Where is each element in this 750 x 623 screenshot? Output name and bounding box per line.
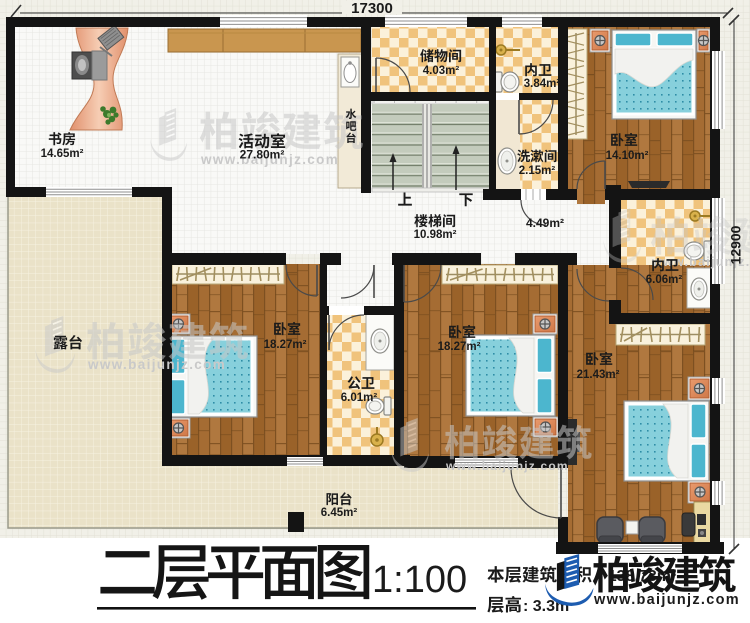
svg-text:27.80m²: 27.80m²: [240, 148, 285, 162]
svg-text:21.43m²: 21.43m²: [577, 369, 620, 381]
svg-text:4.03m²: 4.03m²: [423, 65, 460, 77]
svg-text:6.01m²: 6.01m²: [341, 392, 378, 404]
svg-text:12900: 12900: [728, 225, 744, 264]
svg-text:4.49m²: 4.49m²: [526, 216, 564, 230]
svg-text:3.84m²: 3.84m²: [524, 78, 561, 90]
svg-text:17300: 17300: [351, 0, 393, 17]
svg-text:14.10m²: 14.10m²: [606, 150, 649, 162]
svg-text:10.98m²: 10.98m²: [414, 229, 457, 241]
svg-text:2.15m²: 2.15m²: [519, 165, 556, 177]
svg-text:14.65m²: 14.65m²: [41, 148, 84, 160]
svg-text:www.baijunjz.com: www.baijunjz.com: [87, 357, 226, 372]
svg-text:18.27m²: 18.27m²: [438, 341, 481, 353]
svg-text:6.06m²: 6.06m²: [646, 274, 683, 286]
svg-text:6.45m²: 6.45m²: [321, 507, 358, 519]
svg-text:www.baijunjz.com: www.baijunjz.com: [445, 459, 569, 473]
svg-text:: 3.3m: : 3.3m: [523, 598, 569, 615]
svg-text:www.baijunjz.com: www.baijunjz.com: [593, 592, 740, 608]
svg-text:1:100: 1:100: [372, 559, 467, 601]
svg-text:18.27m²: 18.27m²: [264, 339, 307, 351]
